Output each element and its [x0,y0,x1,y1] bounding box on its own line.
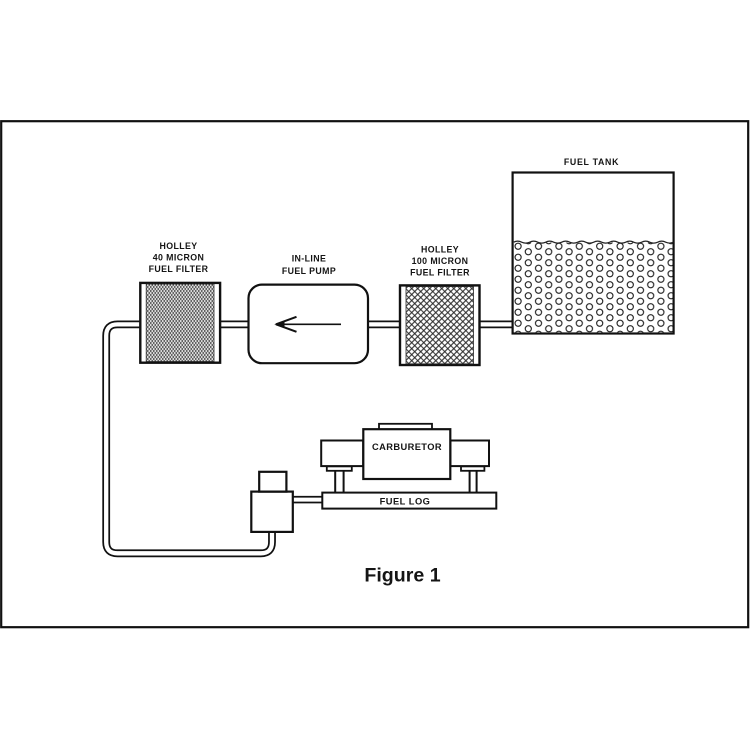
svg-text:FUEL FILTER: FUEL FILTER [149,264,209,274]
svg-text:FUEL LOG: FUEL LOG [380,496,431,506]
svg-text:HOLLEY: HOLLEY [421,245,459,255]
svg-text:100 MICRON: 100 MICRON [412,256,469,266]
svg-text:FUEL TANK: FUEL TANK [564,157,619,167]
svg-text:FUEL FILTER: FUEL FILTER [410,268,470,278]
svg-text:IN-LINE: IN-LINE [292,254,327,264]
svg-text:40 MICRON: 40 MICRON [153,253,205,263]
svg-text:FUEL PUMP: FUEL PUMP [282,266,336,276]
svg-text:HOLLEY: HOLLEY [159,241,197,251]
svg-text:Figure 1: Figure 1 [364,565,440,587]
svg-text:CARBURETOR: CARBURETOR [372,442,442,452]
